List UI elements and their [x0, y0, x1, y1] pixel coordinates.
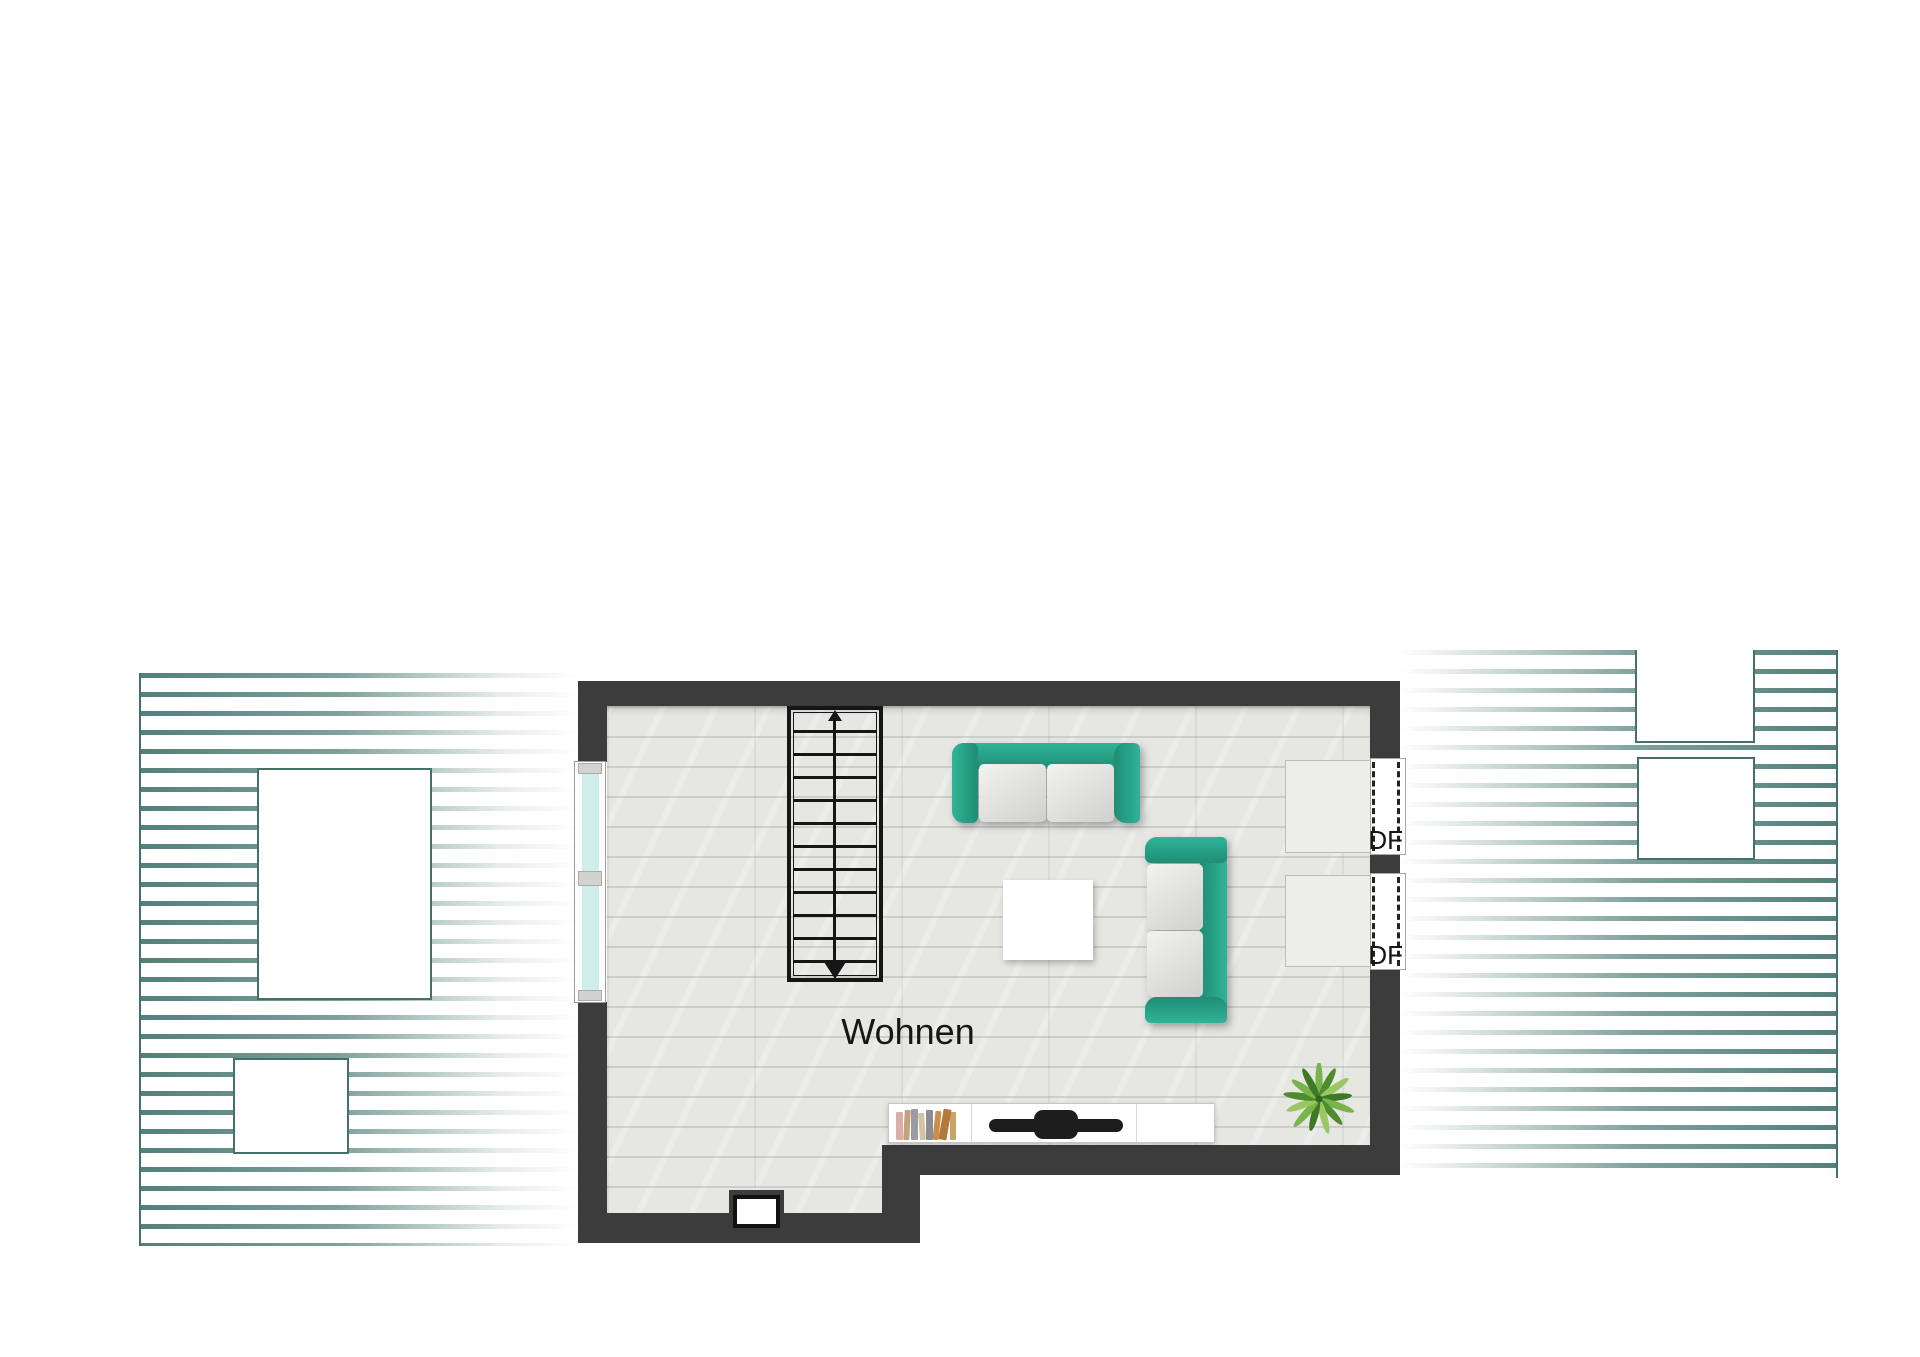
roof-cutout-left-upper [257, 768, 432, 1000]
books-icon [896, 1108, 957, 1140]
window-left [574, 761, 606, 1003]
window-sill-top [578, 763, 602, 774]
staircase-walkline [833, 714, 836, 964]
roof-window-label: DF [1368, 825, 1403, 856]
chimney-flue [733, 1195, 780, 1228]
sofa-cushion [1147, 864, 1203, 930]
stair-arrow-down-icon [824, 962, 846, 979]
coffee-table [1003, 880, 1093, 960]
sofa-cushion [1047, 764, 1114, 822]
sofa-cushion [1147, 931, 1203, 997]
sofa-armrest-bottom [1145, 997, 1227, 1023]
roof-window-lower-shaft [1285, 875, 1371, 967]
window-sill-bottom [578, 990, 602, 1001]
roof-window-upper-shaft [1285, 760, 1371, 853]
roof-hatch-right [1400, 650, 1838, 1178]
wall-right-seg1 [1370, 706, 1400, 760]
wall-bottom-right [882, 1145, 1400, 1175]
plant-icon [1283, 1063, 1355, 1135]
wall-left-upper [578, 681, 607, 762]
sofa-armrest-right [1114, 743, 1140, 823]
roof-hatch-fade [1400, 650, 1836, 1178]
sofa-backrest [1200, 837, 1227, 1023]
roof-window-lower: DF [1370, 873, 1406, 970]
roof-cutout-right [1637, 757, 1755, 860]
sofa-armrest-top [1145, 837, 1227, 863]
roof-window-label: DF [1368, 940, 1403, 971]
window-mullion [578, 871, 602, 886]
sideboard-divider [1136, 1104, 1137, 1142]
chimney [729, 1190, 784, 1243]
wall-top [578, 681, 1400, 706]
stair-arrow-start-icon [828, 710, 842, 721]
floor-plan: DF DF [0, 0, 1920, 1357]
sideboard-divider [971, 1104, 972, 1142]
roof-cutout-left-lower [233, 1058, 349, 1154]
sofa-two-seater-top [952, 743, 1140, 823]
sofa-armrest-left [952, 743, 978, 823]
roof-hatch-left [139, 673, 578, 1246]
wall-left-lower [578, 1002, 607, 1243]
sofa-two-seater-side [1145, 837, 1227, 1023]
staircase [787, 706, 883, 982]
sofa-cushion [979, 764, 1046, 822]
roof-notch-right-top [1635, 650, 1755, 743]
sideboard [888, 1103, 1215, 1143]
room-label: Wohnen [818, 1014, 998, 1050]
roof-window-upper: DF [1370, 758, 1406, 855]
